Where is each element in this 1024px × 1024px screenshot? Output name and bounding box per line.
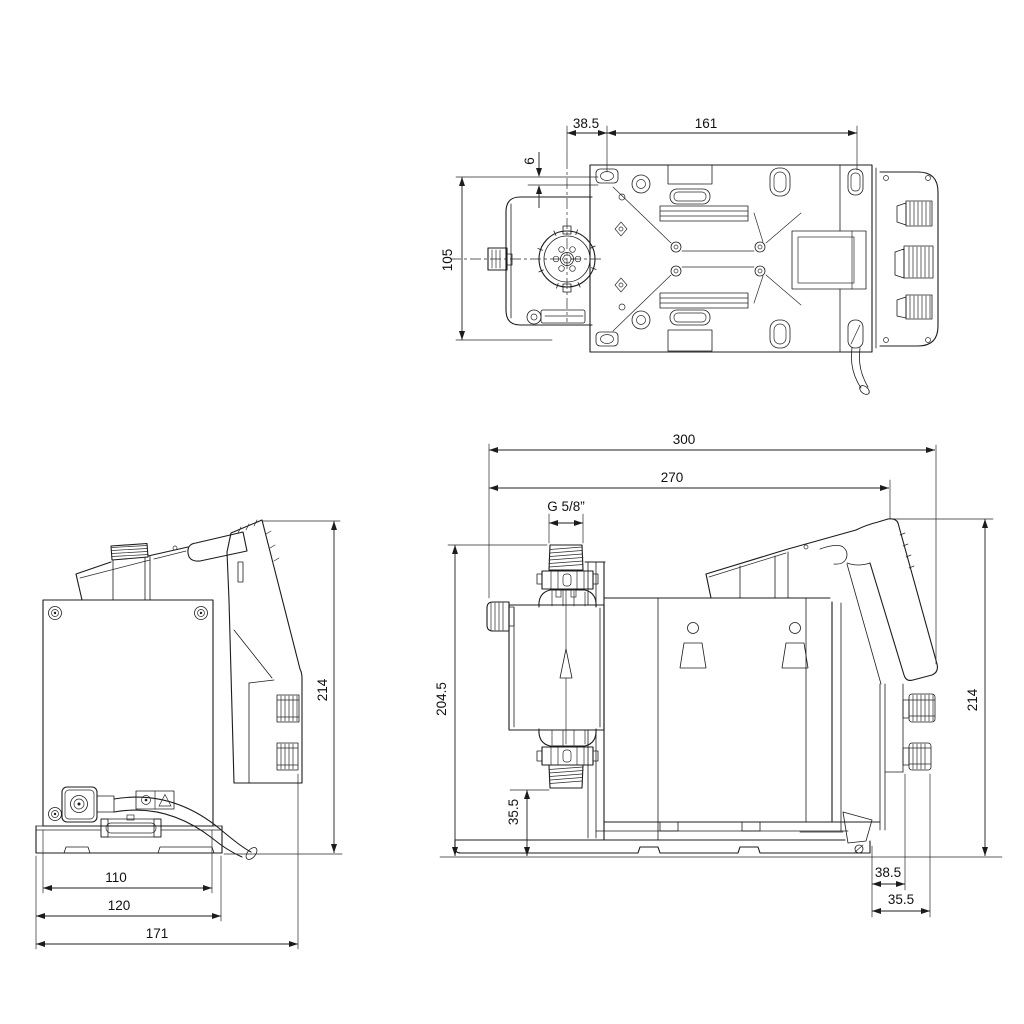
cable-gland-knob xyxy=(903,743,931,770)
pump-body-side xyxy=(585,562,880,840)
rear-foot-bracket xyxy=(843,812,872,843)
cable-gland-knob xyxy=(895,246,933,278)
dimension-38-5-top: 38.5 xyxy=(567,116,607,172)
screw-icon xyxy=(49,607,62,620)
back-panel xyxy=(43,600,213,826)
cable-gland-knob xyxy=(277,743,298,770)
cable-gland-knob xyxy=(903,694,935,722)
deaeration-knob xyxy=(487,602,514,631)
warning-label xyxy=(136,791,174,809)
dimension-120-rear: 120 xyxy=(36,856,221,949)
control-cover-side xyxy=(706,519,937,830)
cable-gland-knob xyxy=(897,201,932,226)
dim-label-110-rear: 110 xyxy=(105,870,127,885)
top-cover-rear xyxy=(76,532,247,600)
discharge-union-nut xyxy=(537,571,598,589)
cover-clip xyxy=(238,562,243,582)
technical-drawing-canvas: 38.5 161 6 105 xyxy=(0,0,1024,1024)
keyhole-slot xyxy=(680,623,706,669)
dim-label-35-5-head-side: 35.5 xyxy=(506,799,521,825)
screw-icon xyxy=(49,808,62,821)
dim-label-6-top: 6 xyxy=(522,157,537,165)
dosing-head-body xyxy=(509,605,604,730)
cable-gland-knob xyxy=(277,695,299,722)
dim-label-120-rear: 120 xyxy=(108,898,131,913)
mounting-plate xyxy=(590,165,872,352)
display-handle xyxy=(188,532,247,561)
suction-thread xyxy=(549,765,583,788)
dimension-161-top: 161 xyxy=(607,116,857,170)
suction-union-nut xyxy=(537,747,598,765)
dim-label-214-rear: 214 xyxy=(315,678,330,701)
dimension-300-side: 300 xyxy=(489,432,936,664)
dim-label-161-top: 161 xyxy=(695,116,718,131)
dim-label-204-5-side: 204.5 xyxy=(434,682,449,716)
dosing-head xyxy=(487,545,604,788)
dim-label-300-side: 300 xyxy=(673,432,696,447)
dimension-204-5-side: 204.5 xyxy=(434,545,547,856)
base-plate-rear xyxy=(36,826,222,853)
control-arm-rear xyxy=(227,520,302,783)
cable-gland-knob xyxy=(897,295,932,319)
pump-motor-housing xyxy=(506,197,592,325)
dimension-6-top: 6 xyxy=(456,152,598,208)
power-connector xyxy=(62,787,114,822)
dimension-214-side: 214 xyxy=(891,519,993,856)
power-cable xyxy=(851,348,871,396)
dimension-35-5-head-side: 35.5 xyxy=(506,790,549,856)
discharge-thread xyxy=(549,545,583,570)
dimension-110-rear: 110 xyxy=(43,830,212,893)
dim-label-214-side: 214 xyxy=(965,688,980,711)
locking-latch xyxy=(527,310,589,325)
top-view: 38.5 161 6 105 xyxy=(440,116,938,396)
dim-label-105-top: 105 xyxy=(440,249,455,272)
dim-label-35-5-base-side: 35.5 xyxy=(888,892,914,907)
rear-view: 214 110 120 171 xyxy=(36,520,342,949)
dim-label-270-side: 270 xyxy=(661,470,684,485)
side-view: 300 270 G 5/8” 204.5 35.5 xyxy=(434,432,1002,917)
dimension-thread-side: G 5/8” xyxy=(547,499,585,543)
dimension-214-rear: 214 xyxy=(224,521,342,854)
keyhole-slot xyxy=(782,623,808,669)
dim-label-38-5-side: 38.5 xyxy=(875,865,901,880)
dim-label-38-5-top: 38.5 xyxy=(573,116,599,131)
dimension-35-5-base-side: 35.5 xyxy=(872,774,930,917)
control-unit-top xyxy=(851,168,938,396)
threaded-connection-rear xyxy=(111,544,150,601)
dim-label-171-rear: 171 xyxy=(146,926,169,941)
flow-arrow-icon xyxy=(560,589,572,744)
valve-crown-bottom xyxy=(539,729,596,746)
dim-label-thread-side: G 5/8” xyxy=(547,499,585,514)
screw-icon xyxy=(195,607,208,620)
